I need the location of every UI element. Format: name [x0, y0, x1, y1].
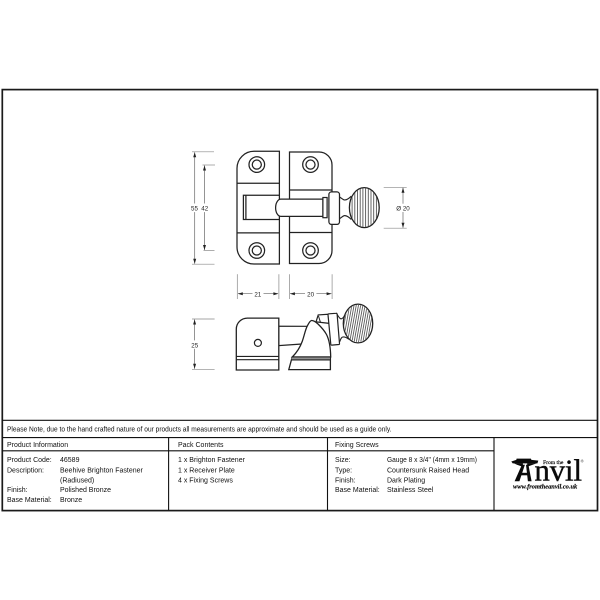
- svg-text:1 x Receiver Plate: 1 x Receiver Plate: [178, 467, 235, 474]
- svg-text:From the: From the: [543, 460, 564, 466]
- svg-text:Description:: Description:: [7, 467, 44, 474]
- svg-text:25: 25: [191, 342, 198, 349]
- svg-text:20: 20: [307, 291, 314, 298]
- svg-text:Finish:: Finish:: [335, 477, 356, 484]
- svg-text:Product Code:: Product Code:: [7, 457, 52, 464]
- svg-text:Please Note, due to the hand c: Please Note, due to the hand crafted nat…: [7, 426, 392, 433]
- svg-text:46589: 46589: [60, 457, 80, 464]
- svg-text:Beehive Brighton Fastener: Beehive Brighton Fastener: [60, 467, 144, 474]
- svg-text:42: 42: [201, 206, 208, 213]
- svg-text:nvil: nvil: [535, 453, 582, 487]
- svg-text:Ø 20: Ø 20: [396, 206, 410, 213]
- svg-text:55: 55: [191, 206, 198, 213]
- svg-text:Base Material:: Base Material:: [335, 487, 380, 494]
- svg-text:®: ®: [581, 459, 585, 464]
- svg-text:Type:: Type:: [335, 467, 352, 474]
- svg-text:Polished Bronze: Polished Bronze: [60, 487, 111, 494]
- svg-text:Finish:: Finish:: [7, 487, 28, 494]
- svg-text:Dark Plating: Dark Plating: [387, 477, 425, 484]
- svg-text:Stainless Steel: Stainless Steel: [387, 487, 434, 494]
- svg-text:Fixing Screws: Fixing Screws: [335, 442, 379, 449]
- svg-text:Size:: Size:: [335, 457, 351, 464]
- svg-text:Countersunk Raised Head: Countersunk Raised Head: [387, 467, 469, 474]
- svg-text:21: 21: [254, 291, 261, 298]
- svg-text:(Radiused): (Radiused): [60, 477, 94, 484]
- svg-text:1 x Brighton Fastener: 1 x Brighton Fastener: [178, 457, 246, 464]
- svg-text:Gauge 8 x 3/4" (4mm x 19mm): Gauge 8 x 3/4" (4mm x 19mm): [387, 457, 477, 464]
- svg-text:4 x Fixing Screws: 4 x Fixing Screws: [178, 477, 233, 484]
- svg-text:Bronze: Bronze: [60, 497, 82, 504]
- svg-text:www.fromtheanvil.co.uk: www.fromtheanvil.co.uk: [513, 484, 578, 491]
- svg-text:Product Information: Product Information: [7, 442, 68, 449]
- svg-text:Base Material:: Base Material:: [7, 497, 52, 504]
- svg-text:Pack Contents: Pack Contents: [178, 442, 224, 449]
